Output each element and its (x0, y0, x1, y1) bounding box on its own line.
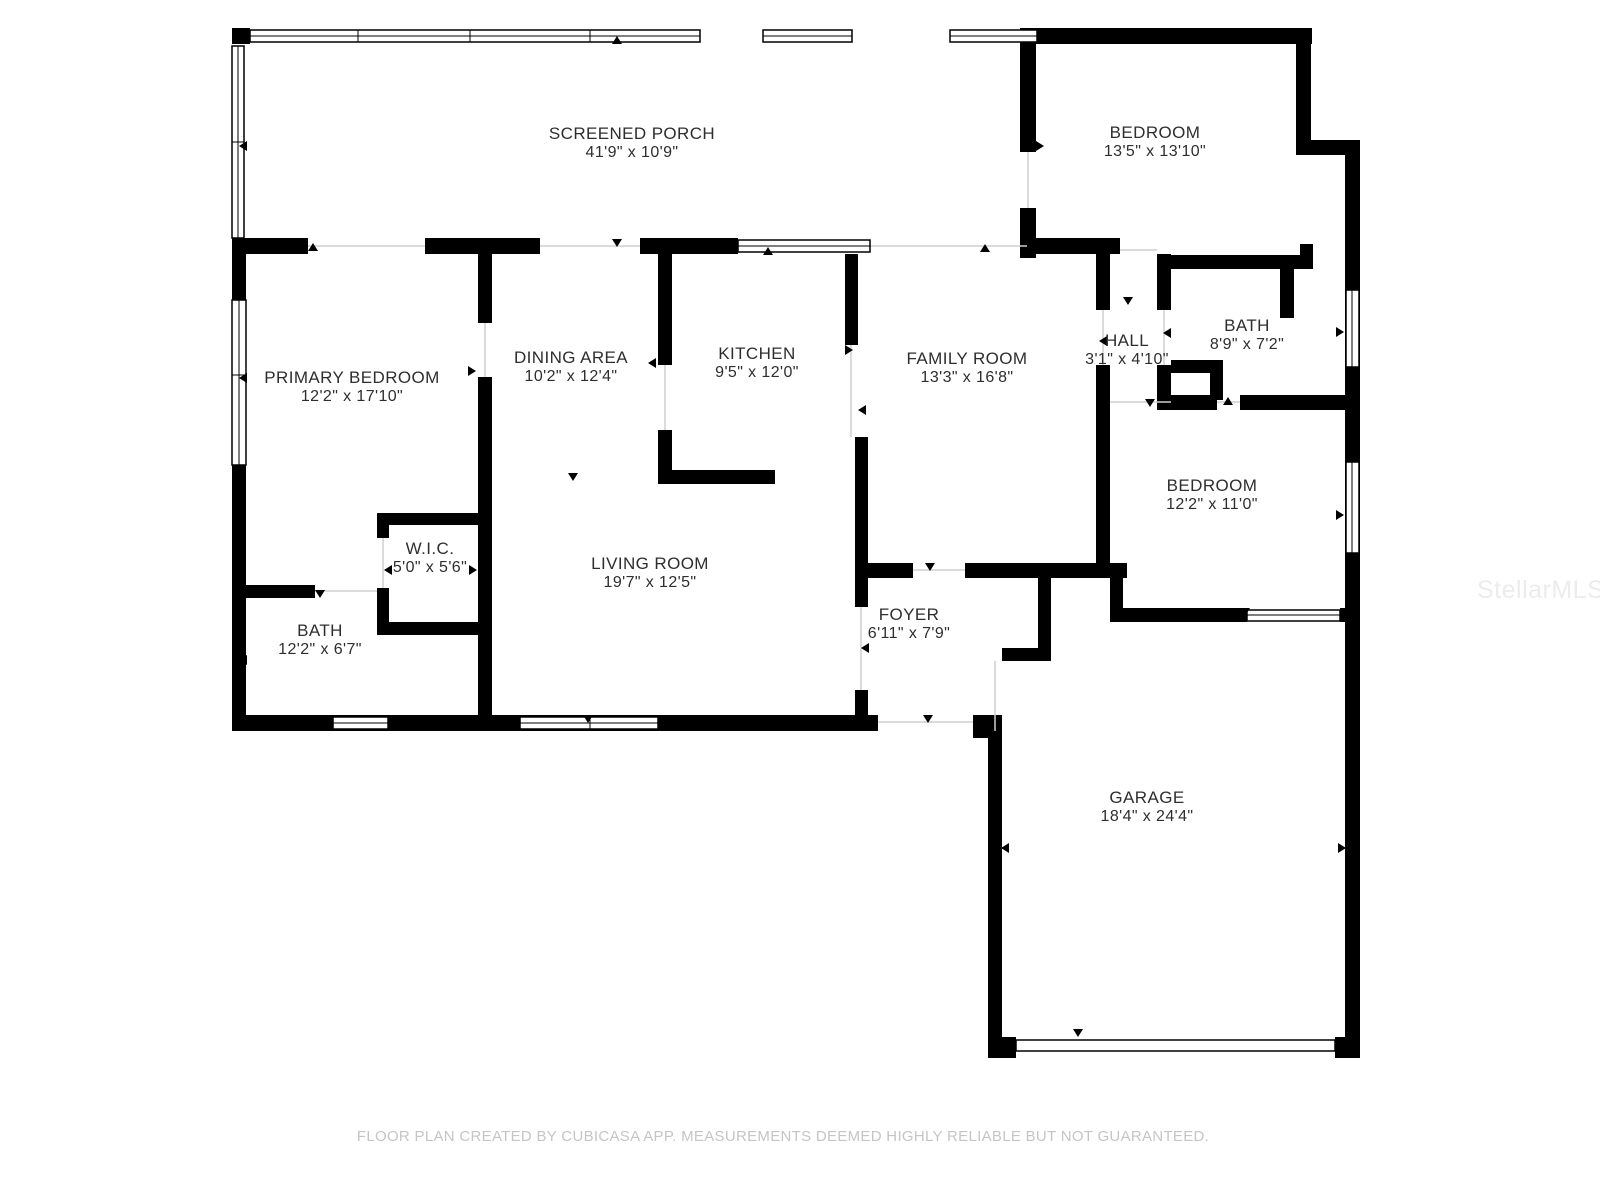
room-name: FOYER (868, 605, 950, 624)
floor-plan-page: SCREENED PORCH 41'9" x 10'9" BEDROOM 13'… (0, 0, 1600, 1200)
room-name: SCREENED PORCH (549, 124, 715, 143)
room-name: BATH (278, 621, 362, 640)
room-dimensions: 13'3" x 16'8" (907, 368, 1028, 387)
room-label-primary-bedroom: PRIMARY BEDROOM 12'2" x 17'10" (264, 368, 439, 406)
room-dimensions: 19'7" x 12'5" (591, 573, 709, 592)
room-dimensions: 12'2" x 11'0" (1166, 495, 1258, 514)
room-dimensions: 13'5" x 13'10" (1104, 142, 1206, 161)
room-name: BATH (1210, 316, 1284, 335)
room-name: PRIMARY BEDROOM (264, 368, 439, 387)
room-label-bedroom-top-right: BEDROOM 13'5" x 13'10" (1104, 123, 1206, 161)
room-label-bath-left: BATH 12'2" x 6'7" (278, 621, 362, 659)
room-dimensions: 8'9" x 7'2" (1210, 335, 1284, 354)
room-name: BEDROOM (1166, 476, 1258, 495)
room-label-living-room: LIVING ROOM 19'7" x 12'5" (591, 554, 709, 592)
room-dimensions: 6'11" x 7'9" (868, 624, 950, 643)
room-label-family-room: FAMILY ROOM 13'3" x 16'8" (907, 349, 1028, 387)
room-name: W.I.C. (393, 539, 467, 558)
room-label-garage: GARAGE 18'4" x 24'4" (1101, 788, 1194, 826)
room-label-hall: HALL 3'1" x 4'10" (1085, 331, 1169, 369)
door-markers (239, 36, 1346, 1037)
room-label-bedroom-right: BEDROOM 12'2" x 11'0" (1166, 476, 1258, 514)
room-label-bath-right: BATH 8'9" x 7'2" (1210, 316, 1284, 354)
room-label-screened-porch: SCREENED PORCH 41'9" x 10'9" (549, 124, 715, 162)
room-name: LIVING ROOM (591, 554, 709, 573)
room-label-wic: W.I.C. 5'0" x 5'6" (393, 539, 467, 577)
room-label-foyer: FOYER 6'11" x 7'9" (868, 605, 950, 643)
room-name: HALL (1085, 331, 1169, 350)
room-name: DINING AREA (514, 348, 628, 367)
room-label-dining-area: DINING AREA 10'2" x 12'4" (514, 348, 628, 386)
room-dimensions: 3'1" x 4'10" (1085, 350, 1169, 369)
room-dimensions: 41'9" x 10'9" (549, 143, 715, 162)
room-dimensions: 10'2" x 12'4" (514, 367, 628, 386)
footer-disclaimer: FLOOR PLAN CREATED BY CUBICASA APP. MEAS… (357, 1128, 1209, 1145)
room-name: BEDROOM (1104, 123, 1206, 142)
room-dimensions: 9'5" x 12'0" (715, 363, 799, 382)
room-dimensions: 18'4" x 24'4" (1101, 807, 1194, 826)
room-name: GARAGE (1101, 788, 1194, 807)
room-dimensions: 12'2" x 17'10" (264, 387, 439, 406)
room-label-kitchen: KITCHEN 9'5" x 12'0" (715, 344, 799, 382)
stellar-mls-watermark: StellarMLS (1477, 576, 1600, 605)
room-dimensions: 5'0" x 5'6" (393, 558, 467, 577)
room-name: FAMILY ROOM (907, 349, 1028, 368)
room-dimensions: 12'2" x 6'7" (278, 640, 362, 659)
floor-plan-drawing (0, 0, 1600, 1200)
room-name: KITCHEN (715, 344, 799, 363)
